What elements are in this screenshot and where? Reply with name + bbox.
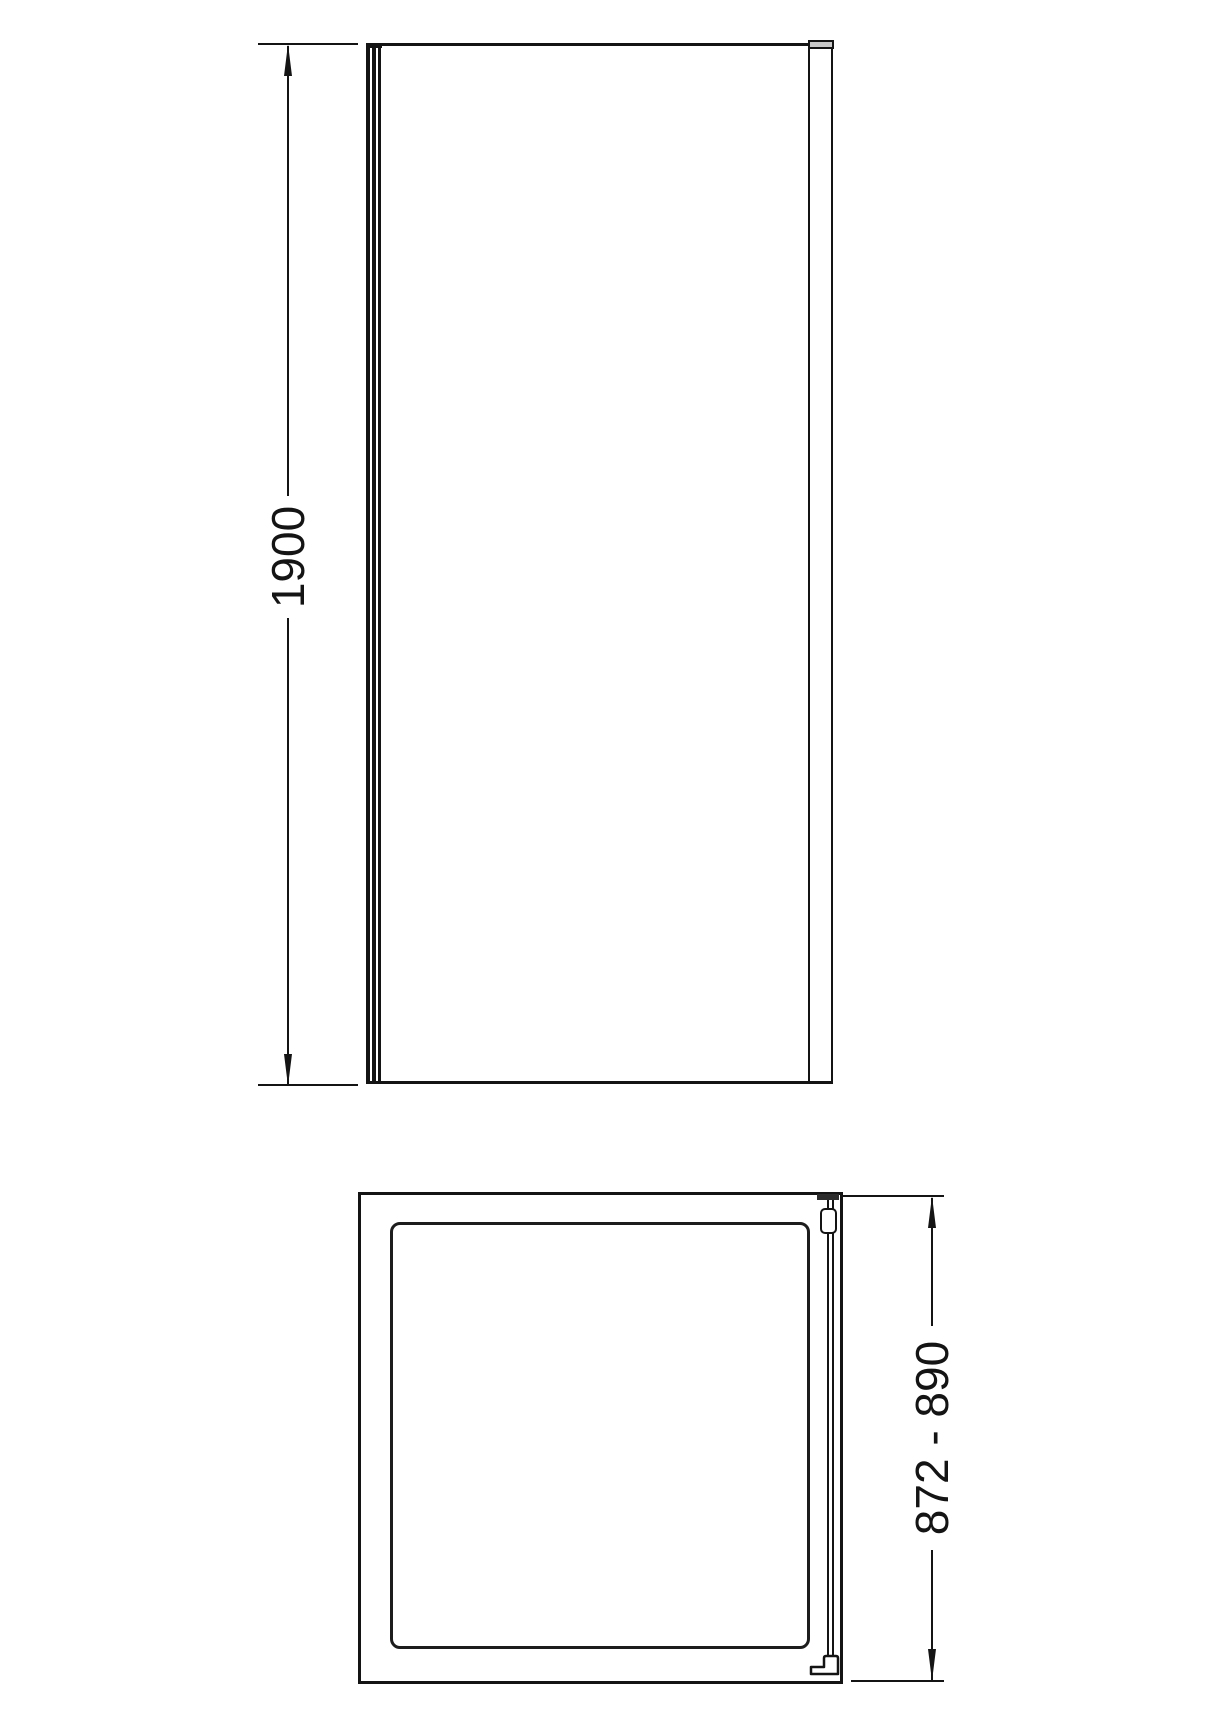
tray-inner-rim xyxy=(390,1222,810,1649)
right-wall-profile-line-1 xyxy=(808,46,810,1083)
arrow-up-icon xyxy=(281,44,295,76)
arrow-down-icon xyxy=(925,1649,939,1681)
width-dimension-label: 872 - 890 xyxy=(909,1341,955,1535)
height-extension-line-bottom xyxy=(258,1084,358,1086)
glass-section-line-1 xyxy=(827,1199,829,1659)
right-wall-profile-line-2 xyxy=(831,46,833,1083)
arrow-up-icon xyxy=(925,1196,939,1228)
top-clamp-bar xyxy=(817,1194,839,1200)
glass-panel-top-edge xyxy=(381,43,809,46)
left-wall-profile-line-2 xyxy=(372,43,376,1084)
glass-section-line-2 xyxy=(832,1199,834,1659)
bottom-foot-bracket xyxy=(809,1653,841,1677)
arrow-down-icon xyxy=(281,1054,295,1086)
top-clamp-bracket xyxy=(820,1208,837,1234)
height-extension-line-top xyxy=(258,43,358,45)
right-wall-profile-cap xyxy=(808,40,834,49)
glass-panel-bottom-edge xyxy=(366,1081,833,1084)
left-wall-profile-line-1 xyxy=(366,43,370,1084)
left-wall-profile-line-3 xyxy=(378,43,381,1084)
height-dimension-label: 1900 xyxy=(265,506,311,608)
height-dimension-line-lower xyxy=(287,618,289,1084)
height-dimension-line-upper xyxy=(287,46,289,496)
technical-drawing: 1900 xyxy=(0,0,1214,1718)
